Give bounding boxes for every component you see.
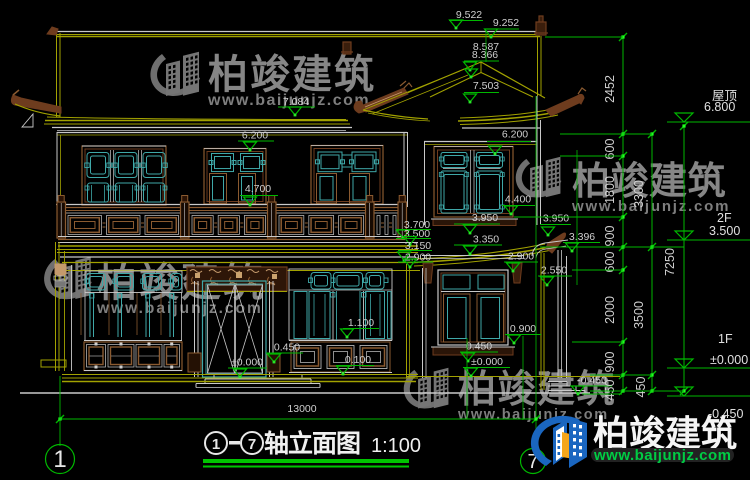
svg-text:6.800: 6.800 [704,100,735,114]
svg-text:450: 450 [634,377,648,398]
svg-text:7: 7 [248,436,256,453]
svg-text:7.503: 7.503 [473,80,499,92]
svg-text:±0.000: ±0.000 [231,357,263,369]
svg-text:www.baijunjz.com: www.baijunjz.com [571,198,730,215]
svg-text:600: 600 [603,252,617,273]
svg-text:2.550: 2.550 [541,265,567,277]
svg-text:7.084: 7.084 [283,96,309,108]
svg-text:7250: 7250 [663,248,677,276]
svg-text:2452: 2452 [603,75,617,103]
svg-text:0.900: 0.900 [510,323,536,335]
svg-text:2000: 2000 [603,296,617,324]
svg-text:0.450: 0.450 [466,341,492,353]
svg-text:3300: 3300 [632,180,646,208]
svg-text:3.396: 3.396 [569,231,595,243]
svg-text:1.100: 1.100 [348,317,374,329]
svg-text:0.450: 0.450 [274,342,300,354]
svg-text:3.950: 3.950 [472,212,498,224]
svg-text:2F: 2F [717,211,732,225]
svg-text:2.900: 2.900 [508,251,534,263]
svg-text:4.700: 4.700 [245,183,271,195]
svg-text:6.200: 6.200 [502,129,528,141]
svg-text:9.252: 9.252 [493,17,519,29]
svg-text:柏竣建筑: 柏竣建筑 [572,161,726,203]
svg-text:柏竣建筑: 柏竣建筑 [208,53,376,97]
svg-text:900: 900 [603,226,617,247]
svg-text:www.baijunjz.com: www.baijunjz.com [457,407,609,423]
svg-text:轴立面图: 轴立面图 [264,429,360,458]
svg-text:450: 450 [603,380,617,401]
svg-text:1:100: 1:100 [371,435,421,457]
svg-text:900: 900 [603,352,617,373]
svg-text:www.baijunjz.com: www.baijunjz.com [593,447,731,464]
svg-text:3.950: 3.950 [543,213,569,225]
svg-text:4.400: 4.400 [505,194,531,206]
svg-text:±0.000: ±0.000 [710,353,748,367]
svg-text:9.522: 9.522 [456,9,482,21]
svg-text:0.100: 0.100 [345,354,371,366]
svg-text:3.500: 3.500 [709,224,740,238]
svg-text:1: 1 [212,436,220,453]
svg-text:3.350: 3.350 [473,234,499,246]
svg-text:8.366: 8.366 [472,49,498,61]
svg-text:1800: 1800 [603,176,617,204]
svg-text:1: 1 [53,446,66,473]
svg-text:6.200: 6.200 [242,130,268,142]
svg-text:3500: 3500 [632,301,646,329]
svg-text:±0.000: ±0.000 [471,356,503,368]
svg-text:13000: 13000 [287,403,316,415]
svg-text:1F: 1F [718,332,733,346]
